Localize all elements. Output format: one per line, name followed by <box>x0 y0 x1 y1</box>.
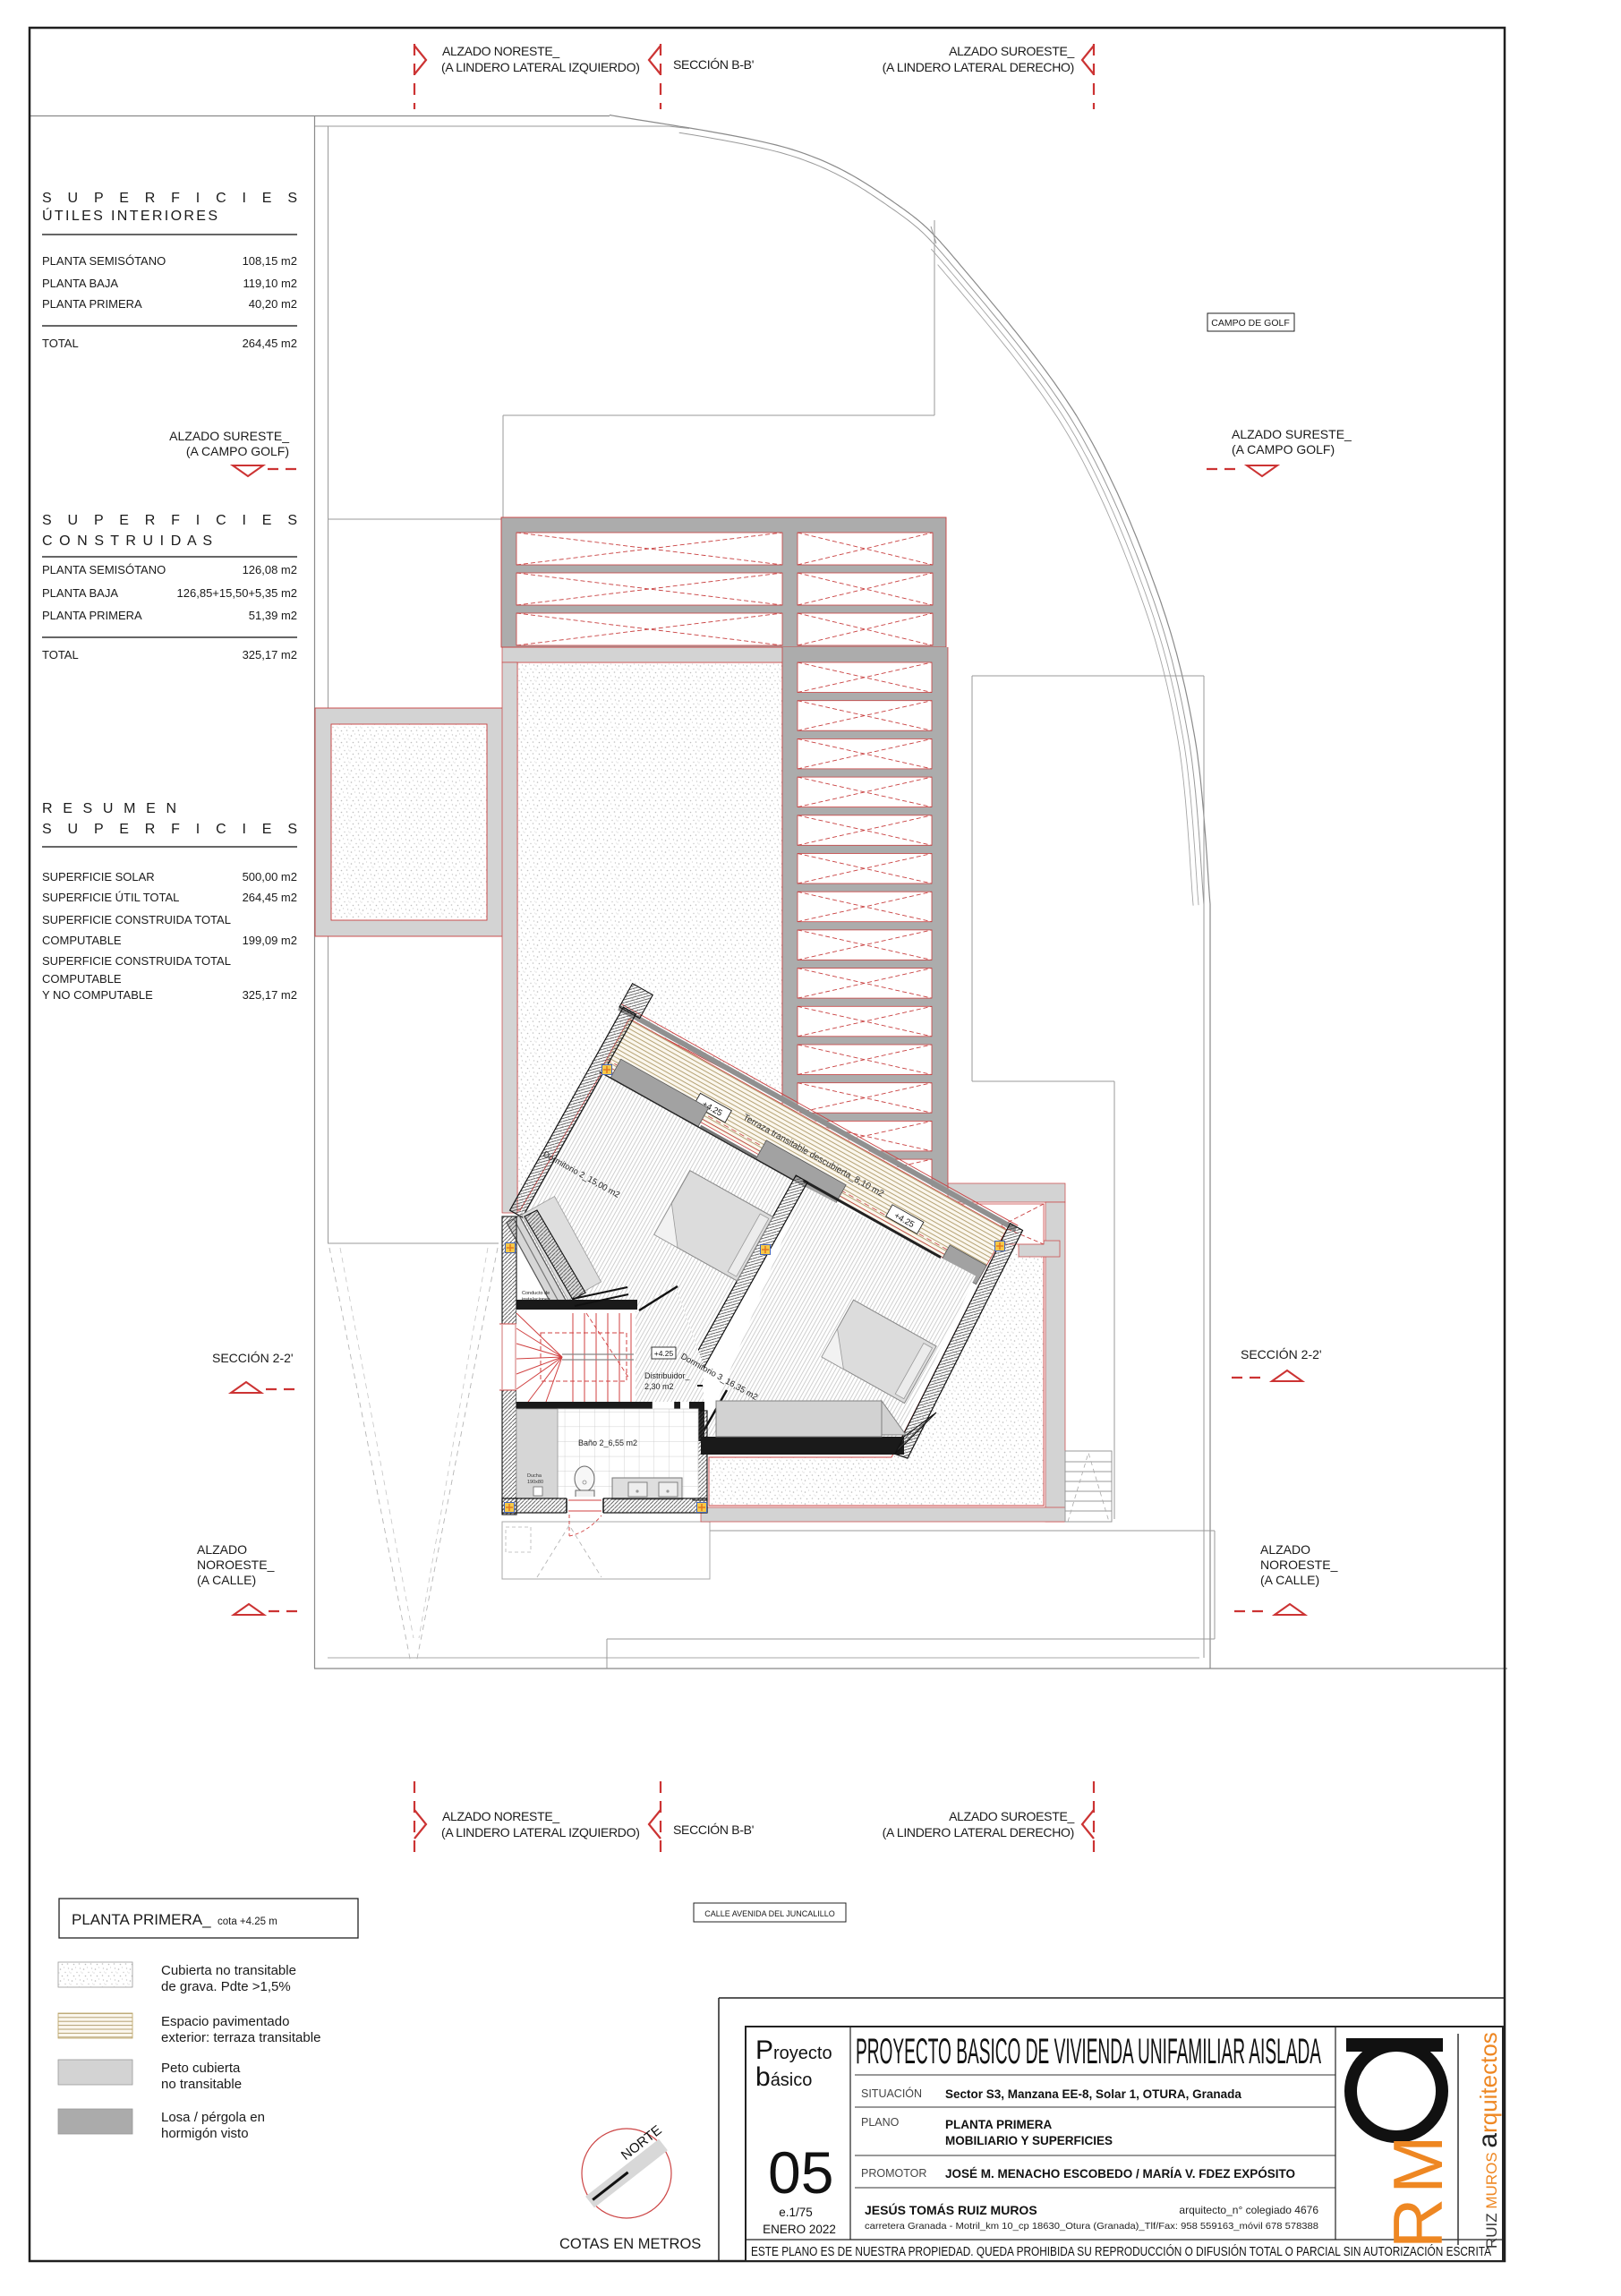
svg-text:SUPERFICIE ÚTIL TOTAL: SUPERFICIE ÚTIL TOTAL <box>42 891 179 904</box>
svg-text:264,45 m2: 264,45 m2 <box>243 337 297 350</box>
svg-text:SECCIÓN B-B': SECCIÓN B-B' <box>673 1822 754 1837</box>
svg-text:PLANTA PRIMERA: PLANTA PRIMERA <box>945 2118 1052 2131</box>
svg-text:arquitecto_n° colegiado 4676: arquitecto_n° colegiado 4676 <box>1179 2204 1318 2216</box>
svg-text:cota +4.25 m: cota +4.25 m <box>218 1916 277 1927</box>
svg-text:SITUACIÓN: SITUACIÓN <box>861 2087 922 2100</box>
svg-text:hormigón visto: hormigón visto <box>161 2126 249 2141</box>
svg-text:de grava. Pdte >1,5%: de grava. Pdte >1,5% <box>161 1979 291 1994</box>
svg-text:PLANTA BAJA: PLANTA BAJA <box>42 586 118 600</box>
svg-text:e.1/75: e.1/75 <box>779 2206 813 2219</box>
svg-text:126,85+15,50+5,35 m2: 126,85+15,50+5,35 m2 <box>177 586 297 600</box>
svg-text:ALZADO NORESTE_: ALZADO NORESTE_ <box>442 1809 559 1823</box>
svg-text:PLANTA PRIMERA: PLANTA PRIMERA <box>42 609 142 622</box>
svg-text:PLANTA SEMISÓTANO: PLANTA SEMISÓTANO <box>42 254 166 268</box>
svg-text:ALZADO: ALZADO <box>197 1542 247 1557</box>
svg-text:51,39 m2: 51,39 m2 <box>249 609 297 622</box>
svg-text:(A LINDERO LATERAL IZQUIERDO): (A LINDERO LATERAL IZQUIERDO) <box>441 60 640 74</box>
svg-text:PLANTA SEMISÓTANO: PLANTA SEMISÓTANO <box>42 563 166 576</box>
svg-text:(A LINDERO LATERAL DERECHO): (A LINDERO LATERAL DERECHO) <box>883 60 1074 74</box>
svg-text:TOTAL: TOTAL <box>42 648 79 661</box>
svg-text:exterior: terraza transitable: exterior: terraza transitable <box>161 2030 320 2045</box>
svg-text:ALZADO SURESTE_: ALZADO SURESTE_ <box>1232 427 1352 441</box>
svg-text:TOTAL: TOTAL <box>42 337 79 350</box>
svg-text:325,17 m2: 325,17 m2 <box>243 988 297 1002</box>
svg-text:Sector S3, Manzana EE-8, Solar: Sector S3, Manzana EE-8, Solar 1, OTURA,… <box>945 2087 1241 2101</box>
svg-text:Conducto de: Conducto de <box>522 1291 550 1296</box>
svg-text:CALLE AVENIDA DEL JUNCALILLO: CALLE AVENIDA DEL JUNCALILLO <box>704 1909 835 1918</box>
svg-text:PROYECTO BASICO DE VIVIENDA UN: PROYECTO BASICO DE VIVIENDA UNIFAMILIAR … <box>856 2032 1321 2071</box>
svg-text:CAMPO DE GOLF: CAMPO DE GOLF <box>1211 318 1290 329</box>
svg-text:Y NO COMPUTABLE: Y NO COMPUTABLE <box>42 988 153 1002</box>
svg-text:SECCIÓN 2-2': SECCIÓN 2-2' <box>212 1351 294 1365</box>
svg-text:40,20 m2: 40,20 m2 <box>249 297 297 311</box>
svg-text:SECCIÓN B-B': SECCIÓN B-B' <box>673 57 754 72</box>
svg-text:Distribuidor_: Distribuidor_ <box>644 1371 691 1380</box>
svg-text:Espacio pavimentado: Espacio pavimentado <box>161 2014 289 2029</box>
svg-text:PLANTA PRIMERA_: PLANTA PRIMERA_ <box>72 1911 211 1928</box>
svg-text:SUPERFICIE CONSTRUIDA TOTAL: SUPERFICIE CONSTRUIDA TOTAL <box>42 954 231 968</box>
svg-text:COMPUTABLE: COMPUTABLE <box>42 972 122 986</box>
svg-text:ALZADO: ALZADO <box>1260 1542 1310 1557</box>
svg-text:(A CALLE): (A CALLE) <box>1260 1573 1319 1587</box>
svg-text:SUPERFICIE CONSTRUIDA TOTAL: SUPERFICIE CONSTRUIDA TOTAL <box>42 913 231 926</box>
svg-text:(A LINDERO LATERAL DERECHO): (A LINDERO LATERAL DERECHO) <box>883 1825 1074 1839</box>
svg-text:Cubierta no transitable: Cubierta no transitable <box>161 1963 296 1978</box>
svg-text:MOBILIARIO Y SUPERFICIES: MOBILIARIO Y SUPERFICIES <box>945 2134 1113 2147</box>
svg-text:199,09 m2: 199,09 m2 <box>243 934 297 947</box>
svg-text:108,15 m2: 108,15 m2 <box>243 254 297 268</box>
svg-text:Losa / pérgola en: Losa / pérgola en <box>161 2110 265 2125</box>
svg-text:no transitable: no transitable <box>161 2077 242 2092</box>
svg-text:JOSÉ M. MENACHO ESCOBEDO / MAR: JOSÉ M. MENACHO ESCOBEDO / MARÍA V. FDEZ… <box>945 2167 1295 2181</box>
svg-text:264,45 m2: 264,45 m2 <box>243 891 297 904</box>
svg-text:JESÚS TOMÁS RUIZ MUROS: JESÚS TOMÁS RUIZ MUROS <box>865 2202 1037 2217</box>
svg-text:(A CAMPO GOLF): (A CAMPO GOLF) <box>186 444 289 458</box>
svg-text:NOROESTE_: NOROESTE_ <box>197 1558 275 1572</box>
svg-text:ALZADO SUROESTE_: ALZADO SUROESTE_ <box>949 44 1074 58</box>
svg-text:Ducha: Ducha <box>527 1473 542 1479</box>
svg-text:Peto cubierta: Peto cubierta <box>161 2061 241 2076</box>
svg-text:ALZADO NORESTE_: ALZADO NORESTE_ <box>442 44 559 58</box>
svg-text:+4.25: +4.25 <box>654 1349 674 1358</box>
svg-text:SUPERFICIE SOLAR: SUPERFICIE SOLAR <box>42 870 155 883</box>
svg-text:COTAS EN METROS: COTAS EN METROS <box>559 2236 701 2252</box>
svg-text:ALZADO SUROESTE_: ALZADO SUROESTE_ <box>949 1809 1074 1823</box>
svg-text:500,00 m2: 500,00 m2 <box>243 870 297 883</box>
svg-text:119,10 m2: 119,10 m2 <box>243 277 297 290</box>
svg-text:carretera Granada - Motril_km: carretera Granada - Motril_km 10_cp 1863… <box>865 2221 1318 2232</box>
svg-text:SECCIÓN 2-2': SECCIÓN 2-2' <box>1241 1347 1322 1361</box>
svg-text:325,17 m2: 325,17 m2 <box>243 648 297 661</box>
svg-text:05: 05 <box>768 2139 833 2206</box>
svg-text:PLANO: PLANO <box>861 2116 900 2129</box>
svg-text:ALZADO SURESTE_: ALZADO SURESTE_ <box>169 429 289 443</box>
svg-text:PLANTA PRIMERA: PLANTA PRIMERA <box>42 297 142 311</box>
svg-text:(A CAMPO GOLF): (A CAMPO GOLF) <box>1232 442 1335 457</box>
svg-text:ENERO 2022: ENERO 2022 <box>763 2223 836 2236</box>
svg-text:2,30 m2: 2,30 m2 <box>644 1382 674 1391</box>
svg-text:190x80: 190x80 <box>527 1480 543 1485</box>
svg-text:Baño 2_6,55 m2: Baño 2_6,55 m2 <box>578 1438 637 1447</box>
svg-text:RM: RM <box>1378 2131 1457 2249</box>
svg-text:C O N S T R U I D A S: C O N S T R U I D A S <box>42 533 212 549</box>
svg-text:PROMOTOR: PROMOTOR <box>861 2167 926 2180</box>
svg-text:(A LINDERO LATERAL IZQUIERDO): (A LINDERO LATERAL IZQUIERDO) <box>441 1825 640 1839</box>
svg-text:PLANTA BAJA: PLANTA BAJA <box>42 277 118 290</box>
svg-text:126,08 m2: 126,08 m2 <box>243 563 297 576</box>
svg-text:ÚTILES INTERIORES: ÚTILES INTERIORES <box>42 207 218 224</box>
svg-text:(A CALLE): (A CALLE) <box>197 1573 256 1587</box>
svg-text:COMPUTABLE: COMPUTABLE <box>42 934 122 947</box>
svg-text:NOROESTE_: NOROESTE_ <box>1260 1558 1338 1572</box>
